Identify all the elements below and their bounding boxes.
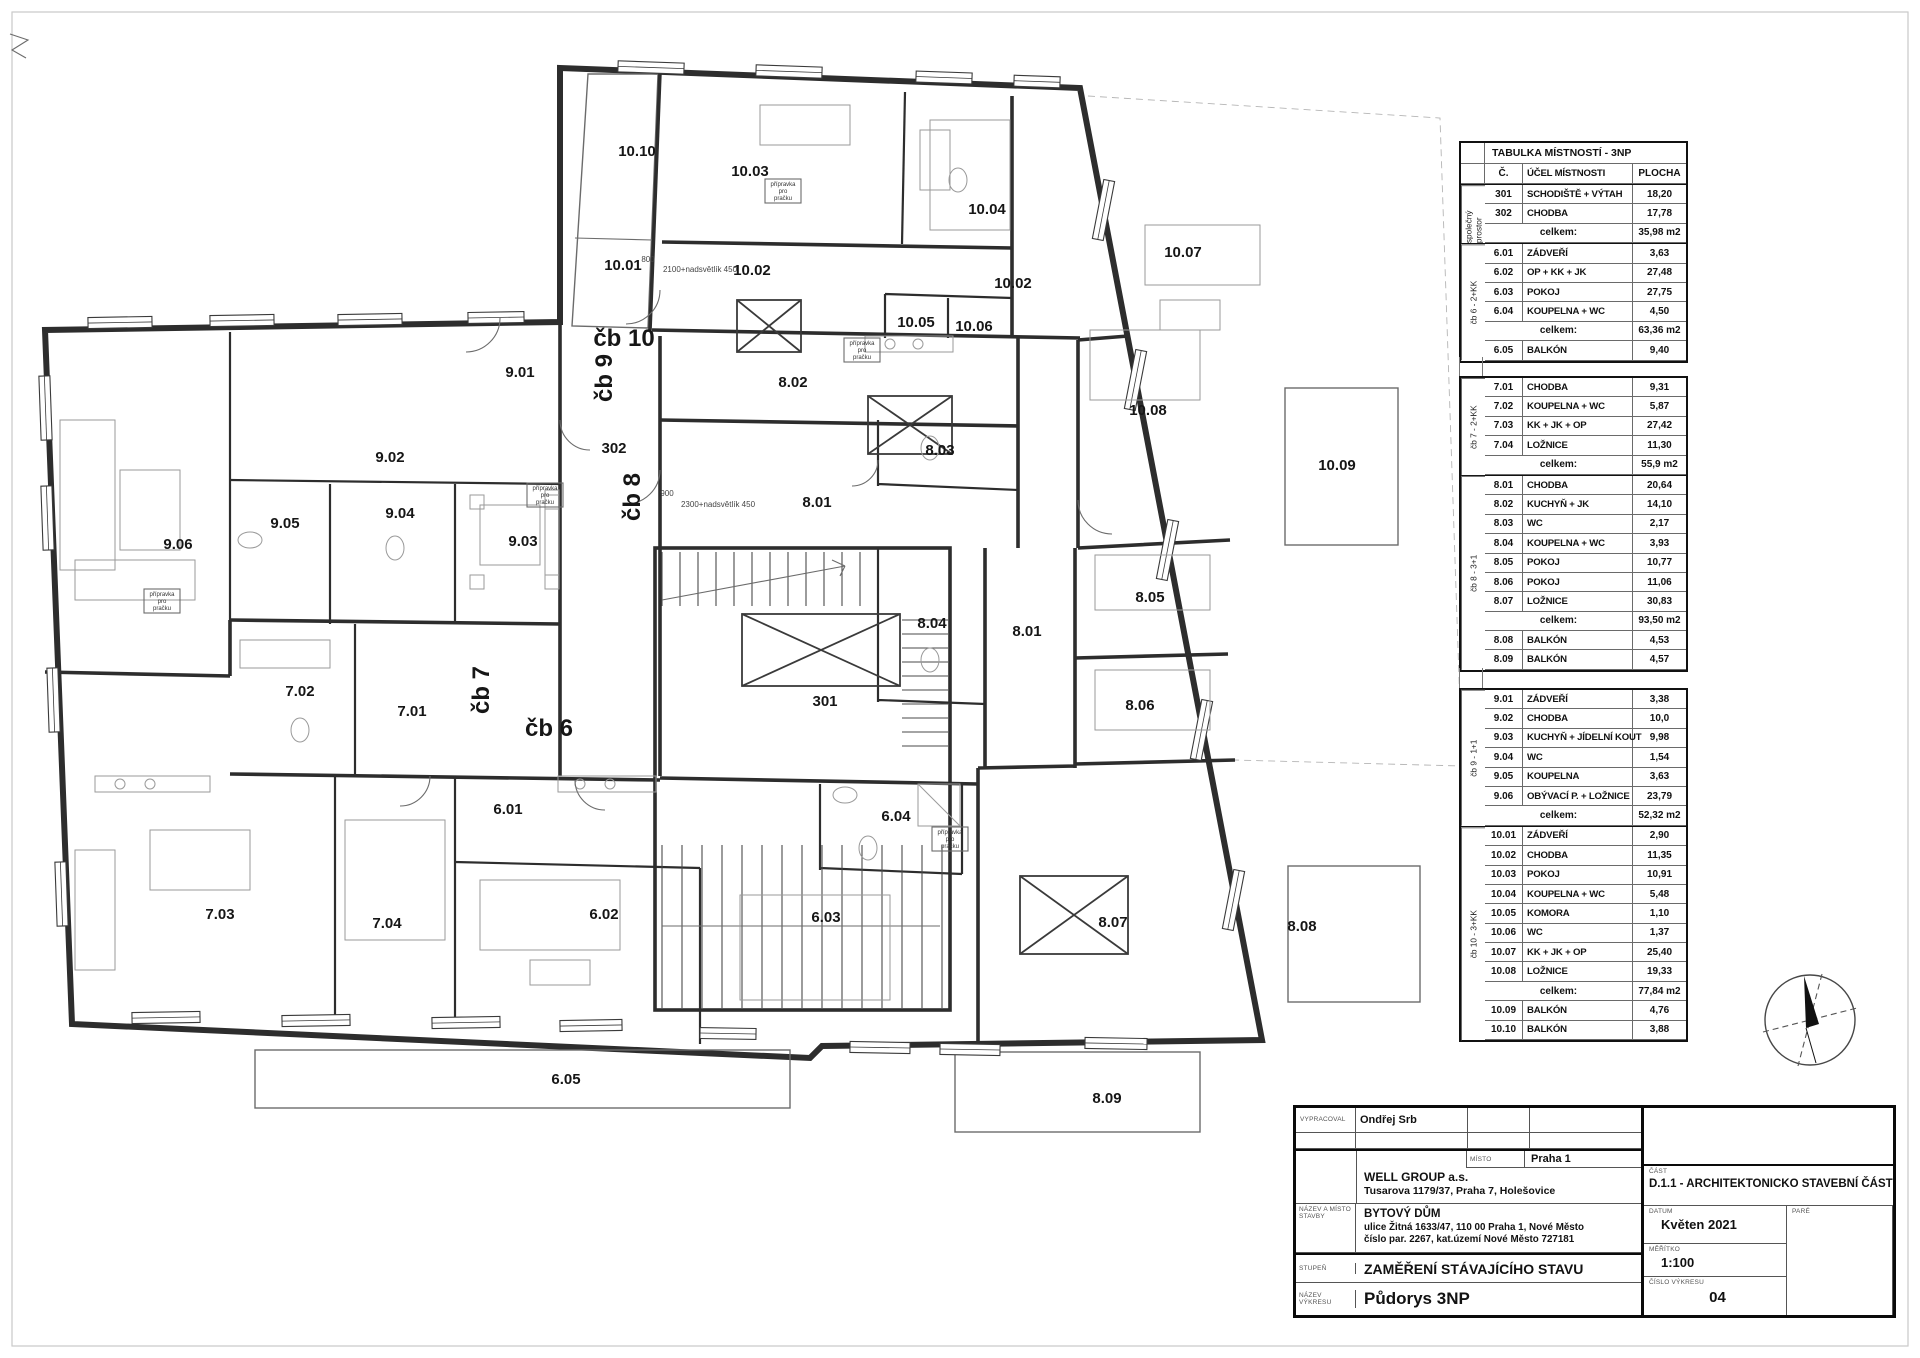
room-label: čb 7 [468,666,495,714]
toilet-fixture [238,532,262,548]
table-block: TABULKA MÍSTNOSTÍ - 3NPČ.ÚČEL MÍSTNOSTIP… [1459,141,1688,363]
table-cell: 63,36 m2 [1633,322,1686,341]
door-swing [1078,500,1112,534]
room-labels: 10.1010.0310.0410.0710.0110.0210.0210.05… [163,143,1355,1107]
plan-annotations: 8002100+nadsvětlík 4509002300+nadsvětlík… [144,179,968,851]
table-cell: WC [1523,748,1633,767]
table-cell: 10.05 [1485,904,1523,923]
building-parcel: číslo par. 2267, kat.území Nové Město 72… [1364,1234,1584,1247]
room-label: 6.03 [811,909,840,926]
table-cell: 8.09 [1485,650,1523,669]
window [700,1028,756,1040]
room-label: 8.05 [1135,589,1164,606]
door-swing [575,780,605,810]
window [850,1041,910,1053]
note-text: pro [946,837,955,843]
window [41,486,54,550]
meritko-label: MĚŘÍTKO [1649,1246,1786,1253]
note-text: přípravka [937,830,963,836]
window [432,1016,500,1028]
table-cell: 55,9 m2 [1633,456,1686,475]
table-cell: 7.03 [1485,417,1523,436]
toilet-fixture [833,787,857,803]
table-cell: POKOJ [1523,554,1633,573]
room-label: 8.06 [1125,697,1154,714]
note-text: přípravka [149,592,175,598]
logo-cell [1644,1108,1893,1166]
unit-group-label: čb 6 - 2+KK [1461,244,1485,360]
table-cell: 8.04 [1485,534,1523,553]
room-label: 6.04 [881,808,911,825]
table-cell: 8.08 [1485,631,1523,650]
stove-burner [145,779,155,789]
window [916,71,972,84]
table-cell: 2,90 [1633,827,1686,846]
table-cell: 2,17 [1633,515,1686,534]
table-cell: ZÁDVEŘÍ [1523,827,1633,846]
table-cell: CHODBA [1523,378,1633,397]
table-cell: 25,40 [1633,943,1686,962]
investor-address: Tusarova 1179/37, Praha 7, Holešovice [1364,1185,1555,1198]
table-cell: KOUPELNA + WC [1523,885,1633,904]
room-label: 6.05 [551,1071,580,1088]
note-text: pro [541,493,550,499]
author-name: Ondřej Srb [1356,1108,1468,1132]
balcony-outline [955,1052,1200,1132]
room-label: 7.03 [205,906,234,923]
table-cell: 4,53 [1633,631,1686,650]
drawing-sheet: 10.1010.0310.0410.0710.0110.0210.0210.05… [0,0,1920,1358]
compass-north-icon [1763,974,1857,1066]
table-cell: 4,76 [1633,1001,1686,1020]
table-cell: 8.02 [1485,495,1523,514]
chair [470,575,484,589]
room-label: 6.02 [589,906,618,923]
table-cell: 18,20 [1633,185,1686,204]
table-cell: 6.02 [1485,264,1523,283]
table-block: čb 9 - 1+19.01ZÁDVEŘÍ3,389.02CHODBA10,09… [1459,688,1688,1042]
table-cell: 9.06 [1485,787,1523,806]
column-header: Č. [1485,164,1523,184]
table-cell: 10.08 [1485,962,1523,981]
room-label: 10.05 [897,314,935,331]
table-cell: BALKÓN [1523,1021,1633,1040]
stavba-label: NÁZEV A MÍSTO STAVBY [1296,1204,1356,1252]
table-cell: 9.02 [1485,709,1523,728]
datum-label: DATUM [1649,1208,1786,1215]
room-label: 7.02 [285,683,314,700]
furniture-item [240,640,330,668]
shaft-cross [737,300,801,352]
datum-value: Květen 2021 [1661,1217,1786,1232]
table-cell: 6.04 [1485,302,1523,321]
room-label: 8.01 [802,494,831,511]
table-cell: 4,50 [1633,302,1686,321]
note-text: pračku [536,500,554,506]
room-label: 8.02 [778,374,807,391]
window [560,1019,622,1031]
window [1092,180,1114,241]
room-label: 10.10 [618,143,656,160]
table-cell: 10,77 [1633,554,1686,573]
window [618,61,684,74]
room-label: 10.04 [968,201,1006,218]
table-cell: celkem: [1485,456,1633,475]
table-cell: 10.10 [1485,1021,1523,1040]
furniture-item [150,830,250,890]
table-cell: 10.09 [1485,1001,1523,1020]
table-cell: BALKÓN [1523,1001,1633,1020]
table-cell: 17,78 [1633,204,1686,223]
balcony-outline [255,1050,790,1108]
table-cell: 9.04 [1485,748,1523,767]
table-cell: celkem: [1485,224,1633,243]
vypracoval-label: VYPRACOVAL [1296,1108,1356,1132]
room-label: 10.06 [955,318,993,335]
table-gap [1459,357,1483,376]
table-cell: LOŽNICE [1523,592,1633,611]
window [282,1014,350,1026]
window [756,65,822,78]
chair [470,495,484,509]
table-cell: CHODBA [1523,204,1633,223]
table-cell: KOUPELNA + WC [1523,534,1633,553]
window [39,376,52,440]
window [338,313,402,325]
table-cell: 6.05 [1485,341,1523,360]
door-swing [400,776,430,806]
window [47,668,60,732]
pare-label: PARÉ [1792,1208,1892,1215]
table-cell: 9,98 [1633,729,1686,748]
furniture-item [1145,225,1260,285]
scale-value: 1:100 [1661,1255,1786,1270]
furniture-item [75,850,115,970]
unit-group-label: čb 10 - 3+KK [1461,827,1485,1040]
window [55,862,68,926]
furniture-item [530,960,590,985]
room-label: 8.01 [1012,623,1041,640]
table-cell: 9.05 [1485,768,1523,787]
window [1085,1037,1147,1049]
table-cell: 77,84 m2 [1633,982,1686,1001]
room-label: 9.01 [505,364,534,381]
room-label: čb 8 [619,473,646,521]
table-cell: 35,98 m2 [1633,224,1686,243]
table-cell: 3,63 [1633,244,1686,263]
room-label: 8.09 [1092,1090,1121,1107]
table-cell: celkem: [1485,612,1633,631]
table-title: TABULKA MÍSTNOSTÍ - 3NP [1485,143,1686,164]
column-header: ÚČEL MÍSTNOSTI [1523,164,1633,184]
drawing-title: Půdorys 3NP [1356,1289,1470,1309]
room-label: 8.08 [1287,918,1316,935]
stove-burner [885,339,895,349]
table-cell: LOŽNICE [1523,436,1633,455]
table-cell: 10.02 [1485,846,1523,865]
unit-group-label: čb 7 - 2+KK [1461,378,1485,475]
misto-value: Praha 1 [1525,1151,1641,1167]
note-text: pračku [774,196,792,202]
table-cell: POKOJ [1523,573,1633,592]
table-cell: 1,37 [1633,924,1686,943]
table-cell: 301 [1485,185,1523,204]
table-cell: 1,10 [1633,904,1686,923]
table-cell: ZÁDVEŘÍ [1523,244,1633,263]
table-cell: 5,48 [1633,885,1686,904]
room-label: 9.04 [385,505,415,522]
room-label: 8.07 [1098,914,1127,931]
note-text: pračku [853,355,871,361]
building-name: BYTOVÝ DŮM [1364,1207,1584,1222]
table-cell: 3,93 [1633,534,1686,553]
window [468,312,524,324]
table-cell: celkem: [1485,322,1633,341]
table-cell: WC [1523,924,1633,943]
room-label: čb 10 [593,325,654,352]
toilet-fixture [291,718,309,742]
window [940,1043,1000,1055]
table-cell: 9.01 [1485,690,1523,709]
table-cell: celkem: [1485,982,1633,1001]
note-text: přípravka [770,182,796,188]
door-swing [626,290,660,324]
table-cell: 10,0 [1633,709,1686,728]
table-cell: 8.06 [1485,573,1523,592]
note-text: pro [158,599,167,605]
table-cell: 10.04 [1485,885,1523,904]
chair [545,575,559,589]
misto-label: MÍSTO [1467,1151,1525,1167]
table-cell: 3,38 [1633,690,1686,709]
table-cell: 302 [1485,204,1523,223]
toilet-fixture [949,168,967,192]
table-cell: KOUPELNA [1523,768,1633,787]
room-label: 8.04 [917,615,947,632]
table-cell: 6.01 [1485,244,1523,263]
table-cell: 27,48 [1633,264,1686,283]
table-cell: 10,91 [1633,866,1686,885]
furniture-item [95,776,210,792]
table-cell: 10.01 [1485,827,1523,846]
window [132,1011,200,1023]
note-text: přípravka [849,341,875,347]
note-text: pračku [153,606,171,612]
table-cell: 11,06 [1633,573,1686,592]
table-cell: CHODBA [1523,476,1633,495]
table-cell: 93,50 m2 [1633,612,1686,631]
table-block: čb 7 - 2+KK7.01CHODBA9,317.02KOUPELNA + … [1459,376,1688,672]
table-cell: 3,63 [1633,768,1686,787]
table-cell: 14,10 [1633,495,1686,514]
window [1014,75,1060,88]
table-gap [1459,668,1483,688]
window [210,314,274,326]
room-label: 10.03 [731,163,769,180]
room-label: 10.08 [1129,402,1167,419]
table-cell: ZÁDVEŘÍ [1523,690,1633,709]
table-cell: 27,42 [1633,417,1686,436]
stupen-label: STUPEŇ [1296,1263,1356,1274]
table-cell: 10.07 [1485,943,1523,962]
table-cell: 9,40 [1633,341,1686,360]
dimension-note: 800 [641,255,655,264]
room-label: 10.02 [994,275,1032,292]
table-cell: 10.06 [1485,924,1523,943]
table-cell: CHODBA [1523,846,1633,865]
table-cell: POKOJ [1523,283,1633,302]
table-cell: BALKÓN [1523,341,1633,360]
door-swing [560,420,590,450]
table-cell: 9,31 [1633,378,1686,397]
table-cell: 6.03 [1485,283,1523,302]
table-cell: 3,88 [1633,1021,1686,1040]
table-cell: KOUPELNA + WC [1523,397,1633,416]
furniture-item [75,560,195,600]
cast-value: D.1.1 - ARCHITEKTONICKO STAVEBNÍ ČÁST [1649,1178,1893,1190]
table-cell: 8.07 [1485,592,1523,611]
stove-burner [115,779,125,789]
unit-group-label: čb 8 - 3+1 [1461,476,1485,670]
room-label: 9.06 [163,536,192,553]
table-cell: 8.03 [1485,515,1523,534]
room-label: 9.02 [375,449,404,466]
dimension-note: 900 [660,489,674,498]
table-cell: 30,83 [1633,592,1686,611]
table-cell: 11,30 [1633,436,1686,455]
column-header [1461,164,1485,184]
cast-label: ČÁST [1649,1168,1893,1175]
balcony-divider [575,238,652,240]
note-text: pro [858,348,867,354]
table-cell: BALKÓN [1523,631,1633,650]
balcony-strip [572,74,658,328]
room-label: 9.03 [508,533,537,550]
table-cell: 20,64 [1633,476,1686,495]
table-cell: SCHODIŠTĚ + VÝTAH [1523,185,1633,204]
table-cell: BALKÓN [1523,650,1633,669]
table-cell: 27,75 [1633,283,1686,302]
room-label: 10.09 [1318,457,1356,474]
room-label: čb 6 [525,715,573,742]
table-cell: 5,87 [1633,397,1686,416]
table-cell: 9.03 [1485,729,1523,748]
table-cell: KK + JK + OP [1523,417,1633,436]
note-text: přípravka [532,486,558,492]
room-label: 7.01 [397,703,426,720]
corner-mark [10,34,28,58]
table-cell: KUCHYŇ + JÍDELNÍ KOUT [1523,729,1633,748]
room-label: 10.07 [1164,244,1202,261]
door-swing [852,460,878,486]
vykres-label: NÁZEV VÝKRESU [1296,1290,1356,1308]
table-cell: 52,32 m2 [1633,806,1686,825]
shower-line [918,784,960,826]
building-address: ulice Žitná 1633/47, 110 00 Praha 1, Nov… [1364,1222,1584,1235]
shaft-cross [742,614,900,686]
table-cell: 7.02 [1485,397,1523,416]
room-label: 10.01 [604,257,642,274]
stove-burner [913,339,923,349]
dimension-note: 2300+nadsvětlík 450 [681,500,756,509]
furniture-item [760,105,850,145]
table-cell: 7.01 [1485,378,1523,397]
unit-group-label: společný prostor [1461,185,1485,243]
table-cell: WC [1523,515,1633,534]
toilet-fixture [386,536,404,560]
table-cell: celkem: [1485,806,1633,825]
room-label: 9.05 [270,515,299,532]
room-label: 7.04 [372,915,402,932]
table-cell: KK + JK + OP [1523,943,1633,962]
room-label: čb 9 [591,354,618,402]
cislo-label: ČÍSLO VÝKRESU [1649,1279,1786,1286]
table-cell: OBÝVACÍ P. + LOŽNICE [1523,787,1633,806]
table-cell: OP + KK + JK [1523,264,1633,283]
table-cell: 19,33 [1633,962,1686,981]
stage-value: ZAMĚŘENÍ STÁVAJÍCÍHO STAVU [1356,1261,1583,1277]
note-text: pro [779,189,788,195]
room-label: 10.02 [733,262,771,279]
window [88,316,152,328]
unit-group-label: čb 9 - 1+1 [1461,690,1485,826]
table-cell: CHODBA [1523,709,1633,728]
table-cell: 7.04 [1485,436,1523,455]
table-cell: 23,79 [1633,787,1686,806]
table-cell: 1,54 [1633,748,1686,767]
table-cell: LOŽNICE [1523,962,1633,981]
table-cell: 8.01 [1485,476,1523,495]
furniture-item [1090,330,1200,400]
dimension-note: 2100+nadsvětlík 450 [663,265,738,274]
table-cell: 11,35 [1633,846,1686,865]
room-label: 6.01 [493,801,522,818]
table-cell: 4,57 [1633,650,1686,669]
room-label: 301 [812,693,837,710]
column-header: PLOCHA [1633,164,1686,184]
furniture-item [1160,300,1220,330]
table-cell: KOMORA [1523,904,1633,923]
room-label: 302 [601,440,626,457]
furniture-item [60,420,115,570]
wall [650,72,660,330]
toilet-fixture [921,648,939,672]
table-cell: 8.05 [1485,554,1523,573]
table-cell: KUCHYŇ + JK [1523,495,1633,514]
title-block: VYPRACOVAL Ondřej Srb MÍSTO Praha 1 WELL… [1293,1105,1896,1318]
investor-name: WELL GROUP a.s. [1364,1170,1555,1185]
table-cell: POKOJ [1523,866,1633,885]
room-label: 8.03 [925,442,954,459]
sheet-number: 04 [1649,1289,1786,1306]
table-cell: KOUPELNA + WC [1523,302,1633,321]
table-cell: 10.03 [1485,866,1523,885]
note-text: pračku [941,844,959,850]
furniture-item [920,130,950,190]
